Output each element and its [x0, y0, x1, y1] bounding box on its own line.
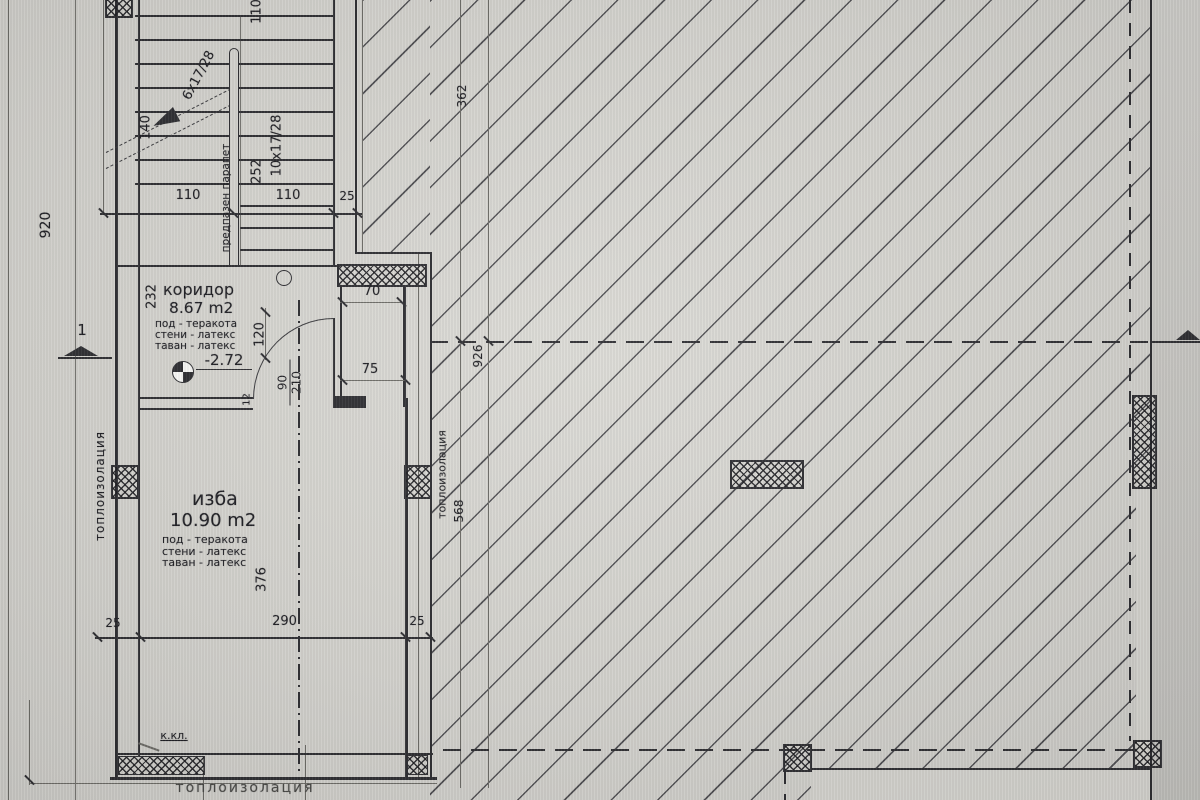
- drawing-right-margin: [1151, 0, 1200, 800]
- corridor-bottom-wall-top: [138, 397, 253, 399]
- level-value: -2.72: [196, 351, 252, 370]
- section-marker-baseline: [58, 357, 112, 359]
- step-top-line: [355, 252, 432, 254]
- column-right-edge: [1132, 395, 1157, 489]
- tread-line: [135, 39, 333, 41]
- right-insulation-line: [418, 253, 419, 777]
- dim-cellar-w: 290: [262, 614, 307, 629]
- insulation-label-right: топлоизолация: [436, 415, 449, 535]
- wall-block-left: [111, 465, 139, 499]
- dim-top-cut: 110: [250, 0, 265, 32]
- insulation-label-left: топлоизолация: [93, 426, 107, 546]
- corridor-bottom-wall-bottom: [138, 408, 253, 410]
- kkl-leader-line: [138, 742, 159, 751]
- tread-line: [240, 249, 333, 251]
- bottom-wall-hatch: [118, 756, 205, 775]
- tread-line: [135, 15, 333, 17]
- door-size-height: 210: [291, 360, 304, 406]
- dim-wall-r: 25: [402, 614, 432, 628]
- kkl-label: к.кл.: [152, 729, 196, 742]
- dim-right-upper: 362: [455, 71, 469, 121]
- cellar-area: 10.90 m2: [170, 510, 272, 531]
- dim-stair-right: 110: [268, 188, 308, 203]
- margin-line-inner: [75, 0, 76, 800]
- door-size-width: 90: [277, 360, 291, 406]
- stair-flight-right-label: 10x17/28: [270, 105, 285, 187]
- corridor-area: 8.67 m2: [169, 299, 260, 317]
- railing-label: предпазен парапет: [220, 123, 232, 273]
- dim-stair-wall: 25: [332, 189, 362, 203]
- bottom-left-dashed-stub: [784, 771, 786, 800]
- cellar-dim-line: [95, 637, 433, 639]
- insulation-edge-top: [362, 0, 363, 253]
- dim-left-total: 920: [38, 195, 54, 255]
- margin-line-outer: [8, 0, 9, 800]
- cellar-right-wall-inner: [405, 398, 408, 777]
- dim-right-total: 926: [471, 331, 485, 381]
- dim-line-earth-b: [488, 0, 489, 788]
- earth-hatch-main: [430, 0, 1150, 800]
- tread-line: [240, 205, 333, 207]
- earth-hatch-top-strip: [362, 0, 430, 253]
- dim-cellar-len: 376: [255, 555, 270, 605]
- section-line-1-1: [430, 341, 1150, 343]
- stair-right-wall-outer: [355, 0, 357, 253]
- dim-corridor-len: 232: [145, 272, 160, 322]
- bottom-wall-top: [115, 753, 433, 755]
- wall-block-right: [404, 465, 432, 499]
- excavation-dashed-line: [1129, 0, 1131, 741]
- wall-block-top-left: [105, 0, 133, 18]
- dim-flight-len: 252: [250, 147, 265, 197]
- dim-stair-left: 110: [168, 188, 208, 203]
- corridor-name: коридор: [163, 280, 260, 299]
- tread-line: [240, 227, 333, 229]
- bottom-wall-hatch-right: [407, 755, 428, 775]
- dim-niche-top: 70: [352, 284, 392, 299]
- niche-dim-line-75: [340, 380, 407, 381]
- stair-right-wall-inner: [333, 0, 335, 267]
- pipe-circle-symbol: [276, 270, 292, 286]
- left-wall-outer: [115, 0, 118, 777]
- right-wall-outer: [430, 253, 432, 777]
- niche-dim-line-70: [340, 302, 403, 303]
- section-marker-triangle-right: [1176, 330, 1200, 340]
- dim-wall-l: 25: [98, 616, 128, 630]
- section-number: 1: [72, 321, 92, 339]
- dim-extension-bottom-left: [29, 700, 30, 785]
- room-axis-line: [298, 300, 300, 776]
- section-marker-triangle-left: [64, 346, 98, 356]
- insulation-label-bottom: топлоизолация: [150, 780, 340, 796]
- section-line-margin: [1150, 341, 1200, 343]
- cellar-floor: под - теракота: [162, 534, 272, 546]
- hatch-mask-bottom-right: [811, 770, 1150, 800]
- dim-start: 140: [139, 106, 154, 150]
- pit-bottom-line: [810, 768, 1150, 770]
- door-jamb-wall: [333, 396, 366, 408]
- cellar-name: изба: [192, 488, 272, 510]
- dim-jamb: 12: [242, 388, 253, 412]
- door-leaf: [333, 318, 335, 398]
- dim-right-lower: 568: [452, 486, 466, 536]
- level-marker-symbol: [172, 361, 194, 383]
- footing-bottom-left: [783, 744, 812, 772]
- dim-niche-bottom: 75: [350, 362, 390, 377]
- room-label-corridor: коридор 8.67 m2 под - теракота стени - л…: [155, 280, 260, 352]
- footing-bottom-right: [1133, 740, 1162, 768]
- column-middle: [730, 460, 804, 489]
- dim-extension-stairs: [103, 0, 104, 215]
- dim-door-clear: 120: [253, 310, 268, 360]
